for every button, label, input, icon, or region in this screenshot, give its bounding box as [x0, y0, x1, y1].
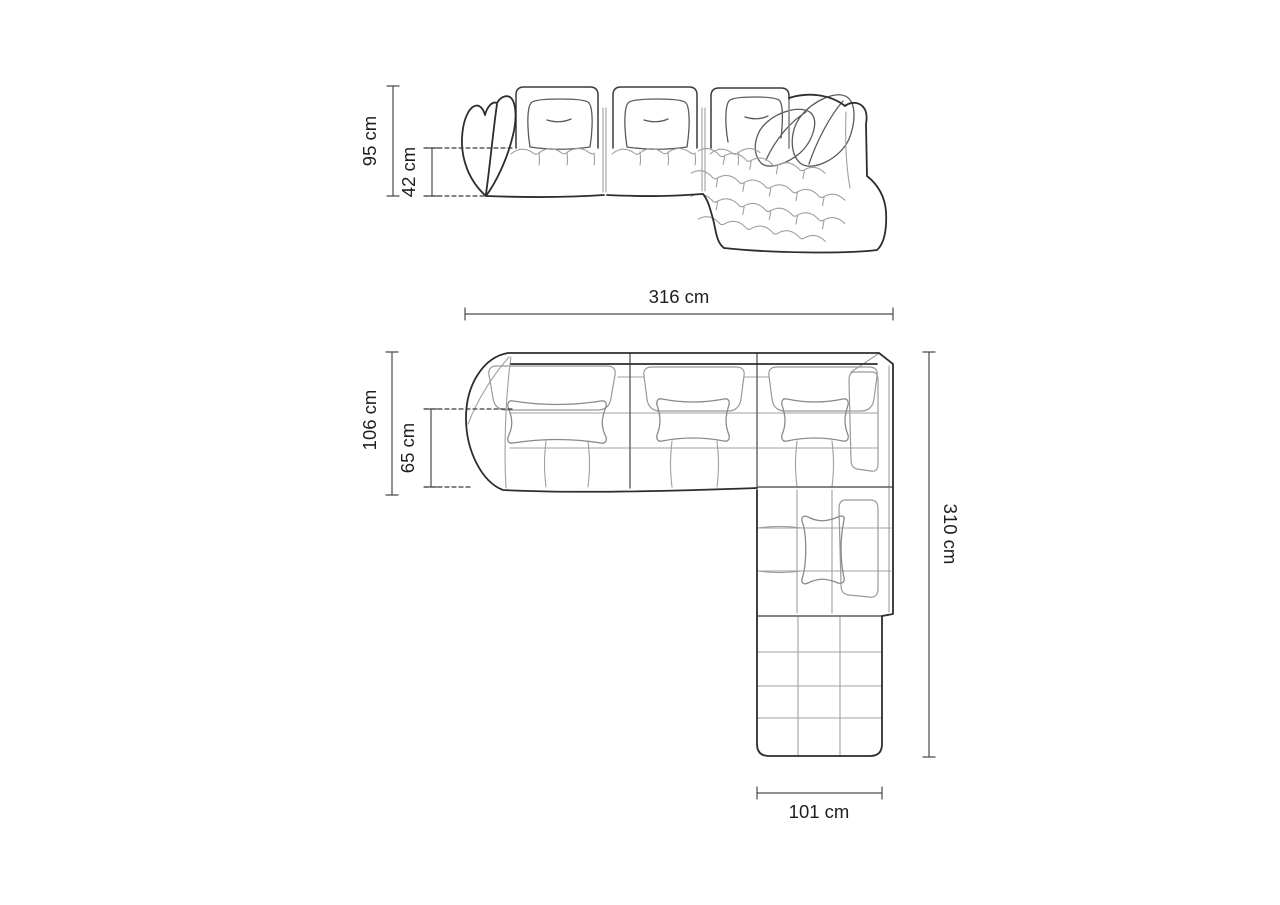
plan-chaise-width-label: 101 cm: [789, 801, 850, 822]
front-pillows: [528, 95, 854, 166]
plan-dashed-lines: [424, 409, 512, 487]
front-quilting: [511, 100, 850, 192]
plan-dimension-lines: [386, 308, 935, 799]
plan-section-dividers: [630, 353, 893, 616]
diagram-canvas: 95 cm 42 cm 316 cm 106 cm 65 cm 310 cm 1…: [0, 0, 1280, 905]
front-seat-height-label: 42 cm: [398, 147, 419, 197]
front-overall-height-label: 95 cm: [359, 116, 380, 166]
plan-quilting: [468, 354, 891, 755]
front-view: 95 cm 42 cm: [359, 86, 886, 252]
plan-overall-length-label: 310 cm: [940, 504, 961, 565]
plan-overall-width-label: 316 cm: [649, 286, 710, 307]
plan-view: 316 cm 106 cm 65 cm 310 cm 101 cm: [359, 286, 961, 822]
plan-overall-depth-label: 106 cm: [359, 390, 380, 451]
sofa-dimension-diagram: 95 cm 42 cm 316 cm 106 cm 65 cm 310 cm 1…: [0, 0, 1280, 905]
plan-seat-depth-label: 65 cm: [397, 423, 418, 473]
plan-back-cushions: [489, 366, 878, 597]
